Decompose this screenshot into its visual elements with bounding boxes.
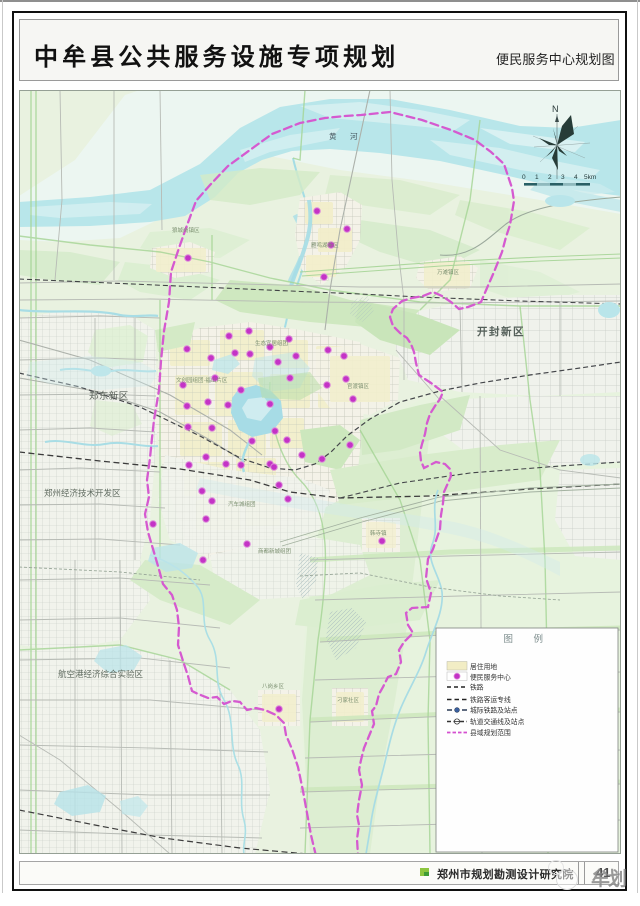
svg-text:0: 0: [522, 174, 526, 181]
svg-text:3: 3: [561, 174, 565, 181]
svg-text:官渡镇区: 官渡镇区: [347, 382, 370, 390]
svg-text:郑州经济技术开发区: 郑州经济技术开发区: [44, 488, 121, 498]
svg-text:便民服务中心: 便民服务中心: [470, 673, 511, 682]
svg-text:万滩镇区: 万滩镇区: [437, 268, 460, 276]
svg-text:居住用地: 居住用地: [470, 662, 497, 671]
svg-text:2: 2: [548, 174, 552, 181]
svg-text:黄: 黄: [329, 131, 337, 141]
svg-text:5km: 5km: [584, 174, 596, 181]
svg-text:八岗乡区: 八岗乡区: [262, 683, 285, 690]
svg-text:郑东新区: 郑东新区: [89, 390, 129, 402]
svg-text:狼城岗镇区: 狼城岗镇区: [172, 226, 200, 234]
svg-text:韩寺镇: 韩寺镇: [370, 529, 387, 537]
svg-text:汽车城组团: 汽车城组团: [228, 500, 256, 508]
svg-text:航空港经济综合实验区: 航空港经济综合实验区: [58, 669, 144, 679]
svg-text:城际铁路及站点: 城际铁路及站点: [470, 706, 518, 715]
svg-text:铁路客运专线: 铁路客运专线: [470, 695, 511, 704]
svg-text:轨道交通线及站点: 轨道交通线及站点: [470, 717, 525, 726]
svg-text:雁鸣湖新区: 雁鸣湖新区: [311, 241, 339, 249]
svg-text:1: 1: [535, 174, 539, 181]
svg-text:图例: 图例: [504, 633, 564, 645]
svg-text:文创园组团·福山片区: 文创园组团·福山片区: [176, 376, 228, 384]
svg-text:商都新城组团: 商都新城组团: [258, 547, 292, 555]
svg-text:开封新区: 开封新区: [477, 325, 525, 338]
svg-text:刁家社区: 刁家社区: [337, 696, 360, 704]
svg-text:河: 河: [350, 132, 358, 141]
svg-text:生态宜居组团: 生态宜居组团: [255, 339, 289, 347]
svg-text:4: 4: [574, 174, 578, 181]
svg-text:铁路: 铁路: [470, 683, 484, 692]
svg-text:N: N: [552, 104, 559, 114]
svg-text:县域规划范围: 县域规划范围: [470, 728, 511, 737]
